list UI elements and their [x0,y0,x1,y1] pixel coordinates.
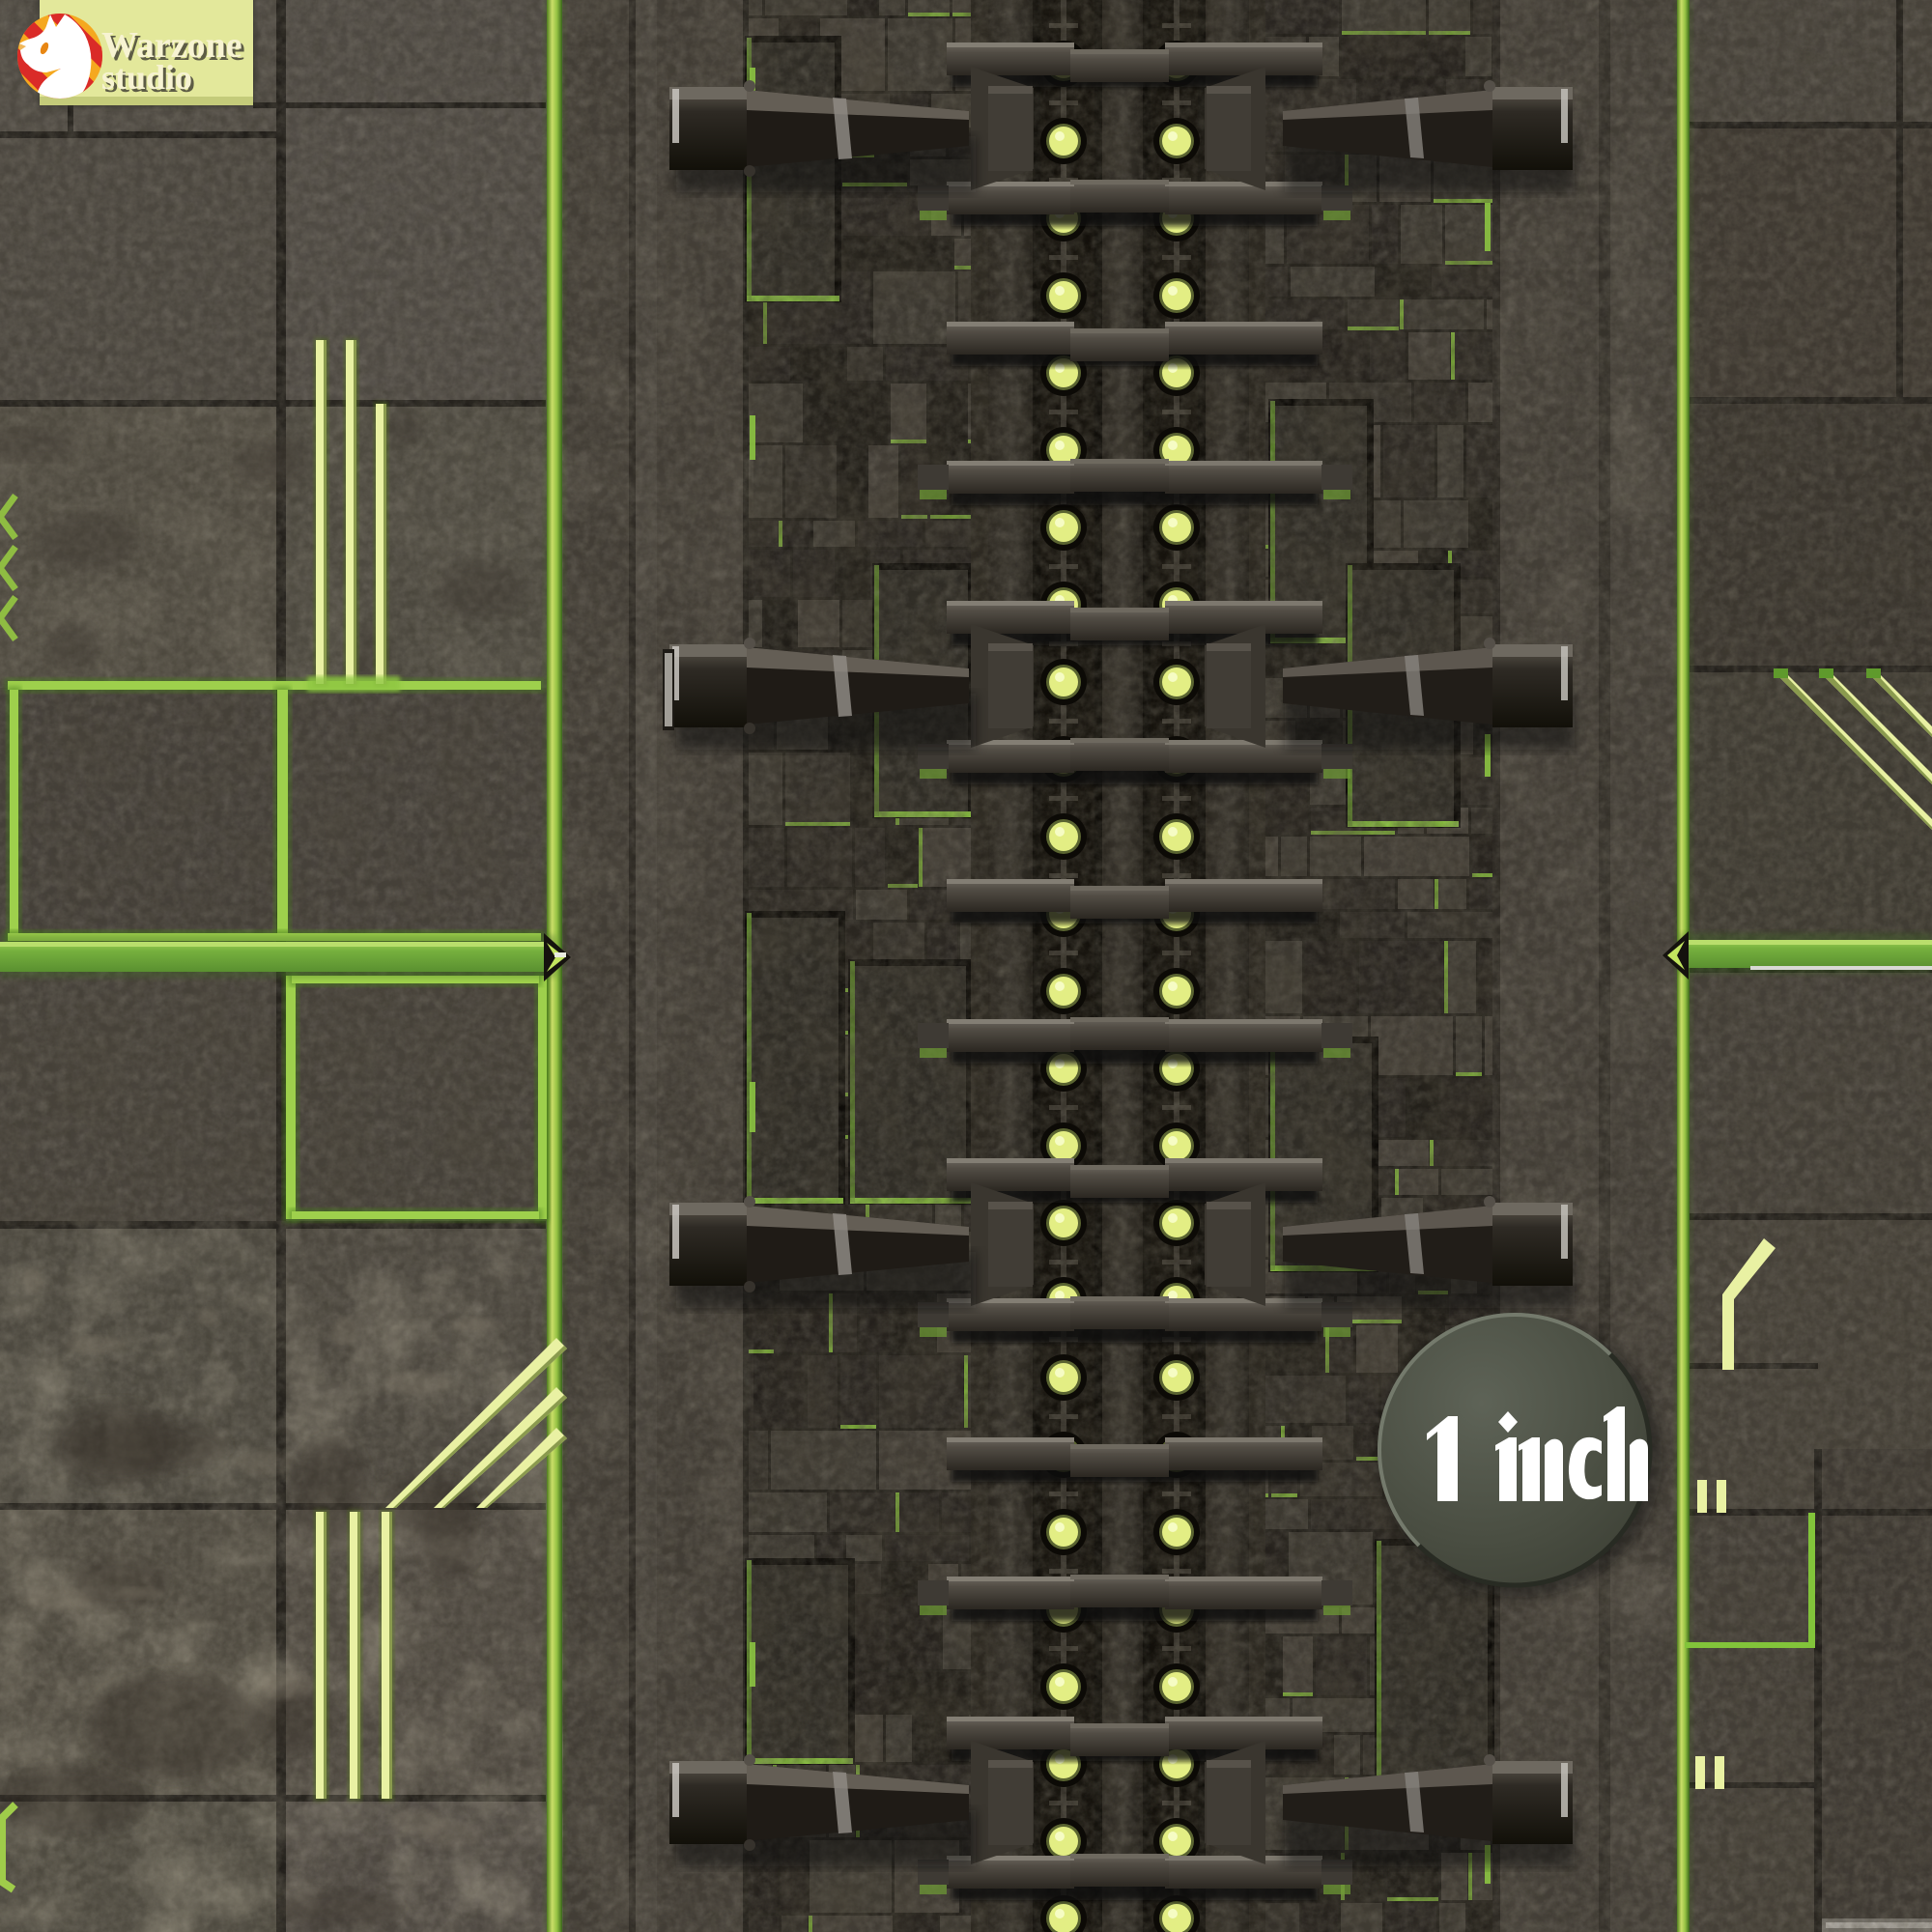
svg-text:studio: studio [101,58,192,97]
